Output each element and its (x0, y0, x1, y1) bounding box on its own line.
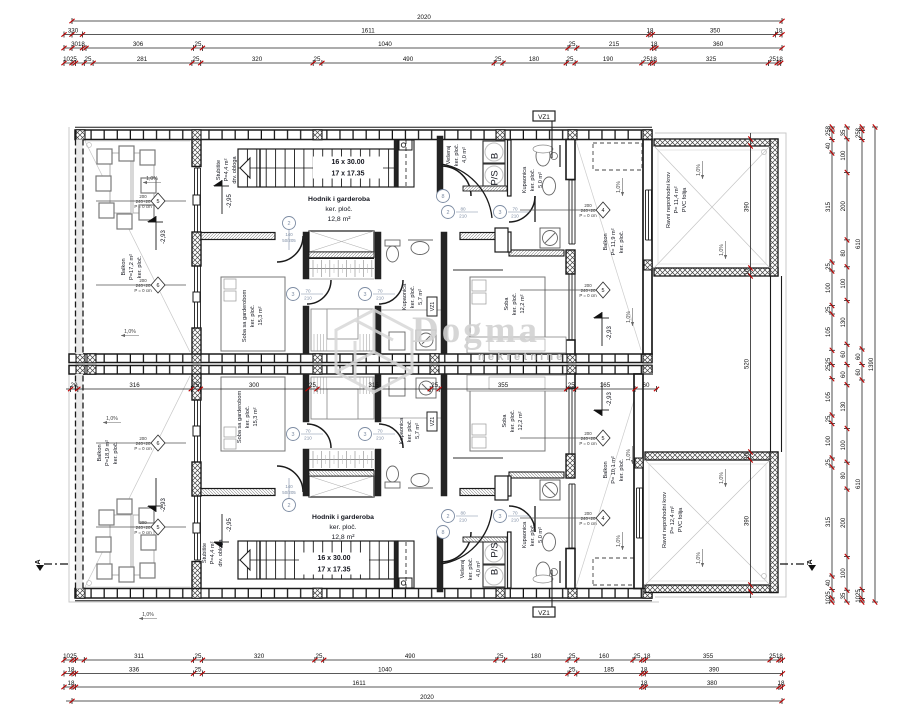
svg-text:1,0%: 1,0% (696, 552, 702, 564)
svg-text:5: 5 (157, 199, 160, 205)
svg-text:ker. ploč.: ker. ploč. (510, 409, 516, 432)
svg-text:2: 2 (288, 503, 291, 509)
svg-text:P = 0 cm: P = 0 cm (134, 204, 152, 209)
svg-text:12,2 m²: 12,2 m² (518, 411, 524, 430)
svg-text:Hodnik i garderoba: Hodnik i garderoba (308, 196, 370, 203)
svg-text:ker. ploč.: ker. ploč. (137, 255, 143, 278)
svg-text:3: 3 (499, 514, 502, 520)
svg-text:315: 315 (826, 201, 832, 212)
svg-text:Vešeraj: Vešeraj (460, 560, 466, 579)
svg-text:1,0%: 1,0% (124, 329, 136, 335)
svg-text:60: 60 (856, 353, 862, 360)
svg-text:25: 25 (826, 306, 832, 313)
svg-text:5: 5 (602, 436, 605, 442)
svg-text:25: 25 (193, 56, 200, 63)
svg-text:18: 18 (68, 680, 75, 687)
svg-text:210: 210 (459, 214, 467, 219)
svg-text:1,0%: 1,0% (106, 416, 118, 422)
svg-text:25: 25 (495, 56, 502, 63)
svg-text:B: B (489, 569, 500, 575)
svg-text:ker. ploč.: ker. ploč. (245, 405, 251, 428)
svg-text:12,8 m²: 12,8 m² (327, 216, 351, 223)
svg-text:5: 5 (602, 288, 605, 294)
svg-text:Kupaonica: Kupaonica (402, 283, 408, 310)
svg-text:Balkon: Balkon (603, 233, 609, 250)
svg-text:1040: 1040 (378, 667, 392, 674)
svg-text:VZ1: VZ1 (538, 114, 550, 121)
svg-text:2: 2 (447, 514, 450, 520)
svg-text:160: 160 (599, 653, 610, 660)
svg-text:2518: 2518 (769, 653, 783, 660)
svg-text:P = 0 cm: P = 0 cm (579, 213, 597, 218)
svg-text:5,0 m²: 5,0 m² (538, 527, 544, 543)
svg-text:610: 610 (856, 478, 862, 489)
svg-text:70: 70 (305, 429, 311, 434)
svg-text:100: 100 (841, 568, 847, 579)
svg-text:17 x 17.35: 17 x 17.35 (317, 567, 350, 574)
svg-text:3: 3 (364, 432, 367, 438)
svg-text:VZ1: VZ1 (430, 417, 436, 427)
svg-text:1611: 1611 (352, 680, 366, 687)
svg-text:2020: 2020 (420, 694, 434, 701)
svg-text:Dogma: Dogma (412, 310, 540, 351)
svg-text:390: 390 (745, 201, 751, 212)
svg-text:210: 210 (304, 436, 312, 441)
svg-text:210: 210 (459, 518, 467, 523)
svg-text:315: 315 (826, 516, 832, 527)
svg-text:Balkon: Balkon (603, 461, 609, 478)
svg-text:1,0%: 1,0% (626, 449, 632, 461)
svg-text:20: 20 (71, 382, 78, 389)
svg-text:25: 25 (497, 653, 504, 660)
svg-text:25: 25 (567, 56, 574, 63)
svg-text:35: 35 (841, 129, 847, 136)
svg-text:336: 336 (129, 667, 140, 674)
svg-text:25: 25 (826, 263, 832, 270)
svg-text:-2,95: -2,95 (227, 518, 233, 532)
svg-text:ker. ploč.: ker. ploč. (250, 304, 256, 327)
svg-text:drv. obloga: drv. obloga (232, 155, 238, 183)
svg-text:100: 100 (841, 150, 847, 161)
svg-text:18: 18 (776, 28, 783, 35)
svg-text:3: 3 (292, 292, 295, 298)
svg-text:ker. ploč.: ker. ploč. (530, 168, 536, 191)
svg-text:70: 70 (512, 207, 518, 212)
svg-text:25: 25 (309, 382, 316, 389)
svg-text:25: 25 (195, 667, 202, 674)
svg-text:18: 18 (644, 653, 651, 660)
svg-text:6: 6 (157, 441, 160, 447)
svg-text:300: 300 (249, 382, 260, 389)
svg-text:P=4,4 m²: P=4,4 m² (224, 158, 230, 181)
svg-text:200: 200 (841, 201, 847, 212)
svg-text:60: 60 (841, 371, 847, 378)
svg-text:105: 105 (826, 391, 832, 402)
svg-text:nekretnine: nekretnine (478, 351, 566, 363)
svg-text:165: 165 (600, 382, 611, 389)
svg-text:185: 185 (604, 667, 615, 674)
svg-text:P= 12,4 m²: P= 12,4 m² (670, 506, 676, 534)
svg-text:ker. ploč.: ker. ploč. (454, 143, 460, 166)
svg-text:25: 25 (826, 459, 832, 466)
svg-text:25: 25 (195, 41, 202, 48)
svg-text:25: 25 (634, 653, 641, 660)
svg-text:1,0%: 1,0% (616, 181, 622, 193)
svg-text:4: 4 (602, 516, 605, 522)
svg-text:1025: 1025 (856, 589, 862, 603)
svg-text:6: 6 (157, 283, 160, 289)
svg-text:8: 8 (442, 530, 445, 536)
svg-text:315: 315 (368, 382, 379, 389)
svg-text:18: 18 (641, 680, 648, 687)
svg-text:25: 25 (569, 41, 576, 48)
svg-text:210: 210 (376, 296, 384, 301)
svg-text:80: 80 (460, 511, 466, 516)
svg-text:1,0%: 1,0% (616, 535, 622, 547)
svg-text:1,0%: 1,0% (696, 164, 702, 176)
svg-text:210: 210 (376, 436, 384, 441)
svg-text:-2,95: -2,95 (227, 194, 233, 208)
svg-text:5,7 m²: 5,7 m² (418, 289, 424, 305)
svg-text:25: 25 (826, 415, 832, 422)
svg-text:105: 105 (826, 326, 832, 337)
svg-text:3: 3 (292, 432, 295, 438)
svg-text:10: 10 (745, 452, 751, 459)
svg-text:140: 140 (285, 232, 293, 237)
svg-text:15,3 m²: 15,3 m² (258, 306, 264, 325)
svg-text:-2,93: -2,93 (161, 230, 167, 244)
svg-text:P= 11,9 m²: P= 11,9 m² (611, 228, 617, 255)
svg-text:25: 25 (569, 653, 576, 660)
svg-text:258: 258 (856, 127, 862, 138)
svg-text:P = 0 cm: P = 0 cm (134, 530, 152, 535)
svg-text:70: 70 (305, 289, 311, 294)
svg-text:P = 0 cm: P = 0 cm (579, 293, 597, 298)
svg-text:40: 40 (826, 142, 832, 149)
svg-text:2518: 2518 (643, 56, 657, 63)
svg-text:Balkon: Balkon (97, 444, 103, 461)
svg-text:Ravni neprohodni krov: Ravni neprohodni krov (662, 492, 668, 548)
svg-text:350: 350 (710, 28, 721, 35)
svg-text:325: 325 (706, 56, 717, 63)
svg-text:ker. ploč.: ker. ploč. (325, 206, 352, 213)
svg-text:2020: 2020 (417, 14, 431, 21)
svg-text:10: 10 (745, 268, 751, 275)
svg-text:80: 80 (460, 207, 466, 212)
svg-text:1611: 1611 (361, 28, 375, 35)
svg-text:50/205: 50/205 (282, 238, 296, 243)
svg-text:70: 70 (512, 511, 518, 516)
svg-text:390: 390 (709, 667, 720, 674)
svg-text:190: 190 (603, 56, 614, 63)
svg-text:2: 2 (288, 221, 291, 227)
svg-text:215: 215 (609, 41, 620, 48)
svg-text:18: 18 (68, 667, 75, 674)
svg-text:18: 18 (651, 41, 658, 48)
svg-text:100: 100 (826, 435, 832, 446)
svg-text:18: 18 (778, 680, 785, 687)
svg-text:P = 0 cm: P = 0 cm (579, 521, 597, 526)
svg-text:ker. ploč.: ker. ploč. (619, 458, 625, 481)
svg-text:ker. ploč.: ker. ploč. (468, 557, 474, 580)
svg-text:258: 258 (826, 125, 832, 136)
svg-text:1,0%: 1,0% (719, 472, 725, 484)
svg-text:60: 60 (856, 368, 862, 375)
svg-text:16 x 30.00: 16 x 30.00 (331, 159, 364, 166)
svg-text:3: 3 (499, 210, 502, 216)
svg-text:ker. ploč.: ker. ploč. (619, 230, 625, 253)
svg-text:25: 25 (568, 382, 575, 389)
svg-text:100: 100 (826, 282, 832, 293)
svg-text:1390: 1390 (869, 357, 875, 371)
svg-text:210: 210 (304, 296, 312, 301)
svg-text:25: 25 (316, 653, 323, 660)
svg-text:180: 180 (531, 653, 542, 660)
svg-text:P = 0 cm: P = 0 cm (134, 446, 152, 451)
svg-text:Kupaonica: Kupaonica (399, 417, 405, 444)
svg-text:210: 210 (511, 214, 519, 219)
svg-text:Stubište: Stubište (202, 543, 208, 563)
svg-text:A: A (807, 559, 814, 564)
svg-text:4,0 m²: 4,0 m² (476, 561, 482, 577)
svg-text:25: 25 (85, 56, 92, 63)
svg-text:80: 80 (841, 472, 847, 479)
svg-text:Soba: Soba (502, 414, 508, 428)
svg-text:Soba sa garderobom: Soba sa garderobom (237, 391, 243, 444)
svg-text:380: 380 (707, 680, 718, 687)
svg-text:70: 70 (377, 289, 383, 294)
svg-text:1,0%: 1,0% (142, 612, 154, 618)
svg-text:ker. ploč.: ker. ploč. (530, 523, 536, 546)
svg-text:ker. ploč.: ker. ploč. (113, 441, 119, 464)
svg-text:1,0%: 1,0% (146, 176, 158, 182)
svg-text:VZ1: VZ1 (538, 610, 550, 617)
svg-text:Vešeraj: Vešeraj (446, 146, 452, 165)
svg-text:320: 320 (254, 653, 265, 660)
svg-text:311: 311 (134, 653, 144, 660)
svg-text:P = 0 cm: P = 0 cm (579, 441, 597, 446)
svg-text:1,0%: 1,0% (626, 311, 632, 323)
svg-text:8: 8 (442, 194, 445, 200)
svg-text:320: 320 (252, 56, 263, 63)
svg-text:355: 355 (498, 382, 509, 389)
svg-text:-2,93: -2,93 (161, 498, 167, 512)
svg-text:25: 25 (314, 56, 321, 63)
svg-text:12,8 m²: 12,8 m² (331, 534, 355, 541)
svg-text:180: 180 (529, 56, 540, 63)
svg-text:3: 3 (364, 292, 367, 298)
svg-text:PVC folija: PVC folija (682, 187, 688, 212)
svg-text:P/S: P/S (489, 542, 500, 557)
svg-text:200: 200 (841, 517, 847, 528)
svg-text:16 x 30.00: 16 x 30.00 (317, 555, 350, 562)
svg-text:210: 210 (511, 518, 519, 523)
svg-text:P=17,2 m²: P=17,2 m² (129, 254, 135, 280)
svg-text:70: 70 (377, 429, 383, 434)
svg-text:330: 330 (68, 28, 79, 35)
svg-text:4: 4 (602, 208, 605, 214)
svg-text:100: 100 (841, 278, 847, 289)
svg-text:Ravni neprohodni krov: Ravni neprohodni krov (666, 172, 672, 228)
svg-text:ker. ploč.: ker. ploč. (410, 285, 416, 308)
svg-text:18: 18 (641, 667, 648, 674)
svg-text:2: 2 (447, 210, 450, 216)
svg-text:306: 306 (133, 41, 144, 48)
svg-text:80: 80 (841, 249, 847, 256)
svg-text:Kupaonica: Kupaonica (522, 166, 528, 193)
svg-text:1025: 1025 (826, 591, 832, 605)
svg-text:1025: 1025 (63, 56, 77, 63)
svg-text:5,0 m²: 5,0 m² (538, 172, 544, 188)
svg-text:355: 355 (703, 653, 714, 660)
svg-text:140: 140 (285, 484, 293, 489)
svg-text:25: 25 (192, 382, 199, 389)
svg-text:2518: 2518 (769, 56, 783, 63)
svg-text:610: 610 (856, 238, 862, 249)
svg-text:60: 60 (841, 350, 847, 357)
svg-text:Kupaonica: Kupaonica (522, 521, 528, 548)
svg-text:25: 25 (195, 653, 202, 660)
svg-text:P=4,4 m²: P=4,4 m² (210, 541, 216, 564)
svg-text:100: 100 (841, 440, 847, 451)
svg-text:50/205: 50/205 (282, 490, 296, 495)
svg-text:-2,93: -2,93 (607, 392, 613, 406)
svg-text:Soba: Soba (504, 297, 510, 311)
svg-text:P= 11,4 m²: P= 11,4 m² (674, 186, 680, 213)
svg-text:490: 490 (405, 653, 416, 660)
svg-text:P=18,9 m²: P=18,9 m² (105, 440, 111, 466)
svg-text:25: 25 (431, 382, 438, 389)
svg-text:1040: 1040 (378, 41, 392, 48)
svg-text:15,3 m²: 15,3 m² (253, 407, 259, 426)
svg-text:2525: 2525 (826, 357, 832, 371)
svg-text:3018: 3018 (71, 41, 85, 48)
svg-text:281: 281 (137, 56, 148, 63)
svg-text:17 x 17.35: 17 x 17.35 (331, 171, 364, 178)
svg-text:PVC folija: PVC folija (678, 507, 684, 532)
svg-text:A: A (35, 559, 42, 564)
svg-text:490: 490 (403, 56, 414, 63)
svg-text:P/S: P/S (489, 170, 500, 185)
svg-text:1025: 1025 (63, 653, 77, 660)
svg-text:Balkon: Balkon (121, 258, 127, 275)
svg-text:4,0 m²: 4,0 m² (462, 147, 468, 163)
svg-text:40: 40 (826, 579, 832, 586)
svg-text:P= 10,1 m²: P= 10,1 m² (611, 456, 617, 484)
svg-text:390: 390 (745, 515, 751, 526)
svg-text:ker. ploč.: ker. ploč. (329, 524, 356, 531)
svg-text:5,7 m²: 5,7 m² (415, 423, 421, 439)
svg-text:130: 130 (841, 317, 847, 328)
svg-text:Soba sa garderobom: Soba sa garderobom (242, 290, 248, 343)
svg-text:Stubište: Stubište (216, 160, 222, 180)
svg-text:35: 35 (841, 592, 847, 599)
svg-text:B: B (489, 153, 500, 159)
svg-text:-2,93: -2,93 (607, 326, 613, 340)
svg-text:60: 60 (643, 382, 650, 389)
svg-text:360: 360 (713, 41, 724, 48)
svg-text:1,0%: 1,0% (719, 244, 725, 256)
svg-text:18: 18 (647, 28, 654, 35)
svg-text:316: 316 (129, 382, 140, 389)
svg-text:ker. ploč.: ker. ploč. (407, 419, 413, 442)
svg-text:520: 520 (745, 358, 751, 369)
svg-text:P = 0 cm: P = 0 cm (134, 288, 152, 293)
svg-text:25: 25 (569, 667, 576, 674)
svg-text:5: 5 (157, 525, 160, 531)
svg-text:130: 130 (841, 401, 847, 412)
svg-text:Hodnik i garderoba: Hodnik i garderoba (312, 514, 374, 521)
svg-text:drv. obloga: drv. obloga (218, 538, 224, 566)
